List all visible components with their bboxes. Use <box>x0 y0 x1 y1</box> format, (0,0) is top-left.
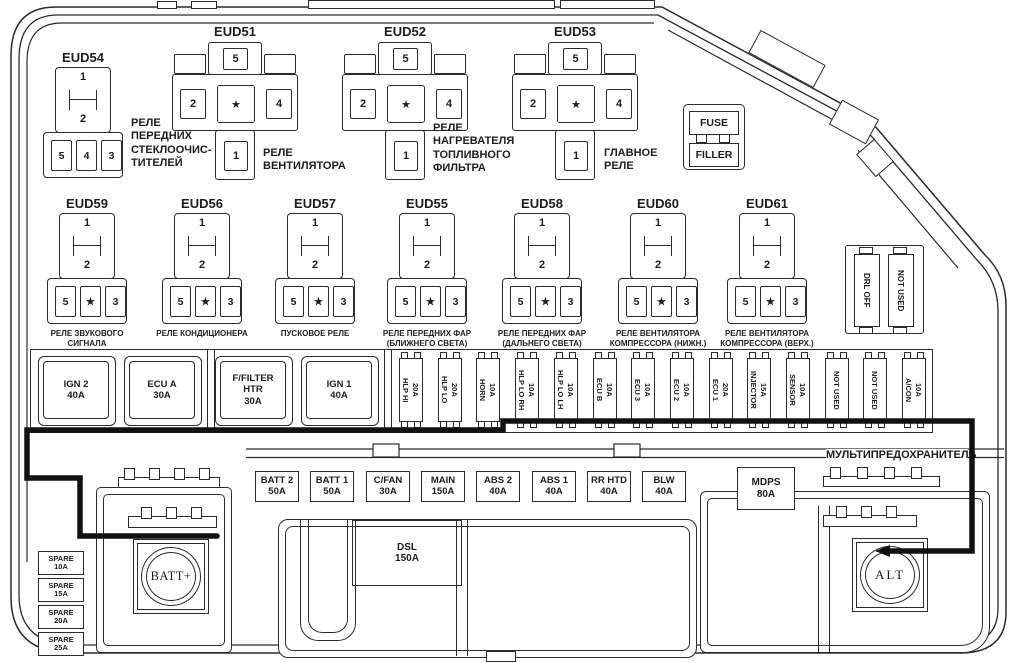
fuse-mdps-amp: 80A <box>757 489 775 500</box>
alternator-terminal-label: ALT <box>853 539 927 611</box>
fuse-filler-tab <box>719 134 730 143</box>
fuse-not-used-label: NOT USED <box>889 255 913 326</box>
drl-tab <box>859 327 873 334</box>
fuse-filler-bottom-cell: FILLER <box>689 143 739 167</box>
drl-tab <box>893 327 907 334</box>
fuse-dsl: DSL 150A <box>352 520 462 586</box>
fuse-filler-tab <box>696 134 707 143</box>
fuse-drl-off: DRL OFF <box>854 254 880 327</box>
alternator-terminal: ALT <box>852 538 928 612</box>
fuse-dsl-amp: 150A <box>395 553 419 564</box>
fuse-mdps: MDPS 80A <box>737 467 795 510</box>
fuse-not-used-relay-box: NOT USED <box>888 254 914 327</box>
fuse-filler-top-cell: FUSE <box>689 111 739 135</box>
battery-terminal-label: BATT+ <box>134 540 208 613</box>
fuse-mdps-name: MDPS <box>752 477 781 488</box>
fuse-filler-block: FUSE FILLER <box>683 104 745 170</box>
multifuse-label: МУЛЬТИПРЕДОХРАНИТЕЛЬ <box>826 449 968 461</box>
labelled-blocks: FUSE FILLER DRL OFF NOT USED MDPS 80A DS… <box>0 0 1024 663</box>
drl-tab <box>859 247 873 254</box>
fuse-drl-off-label: DRL OFF <box>855 255 879 326</box>
fuse-dsl-name: DSL <box>397 542 417 553</box>
drl-fuse-block: DRL OFF NOT USED <box>845 245 924 334</box>
drl-tab <box>893 247 907 254</box>
battery-terminal: BATT+ <box>133 539 209 614</box>
engine-fuse-box-diagram: EUD5412543РЕЛЕ ПЕРЕДНИХ СТЕКЛООЧИС- ТИТЕ… <box>0 0 1024 663</box>
